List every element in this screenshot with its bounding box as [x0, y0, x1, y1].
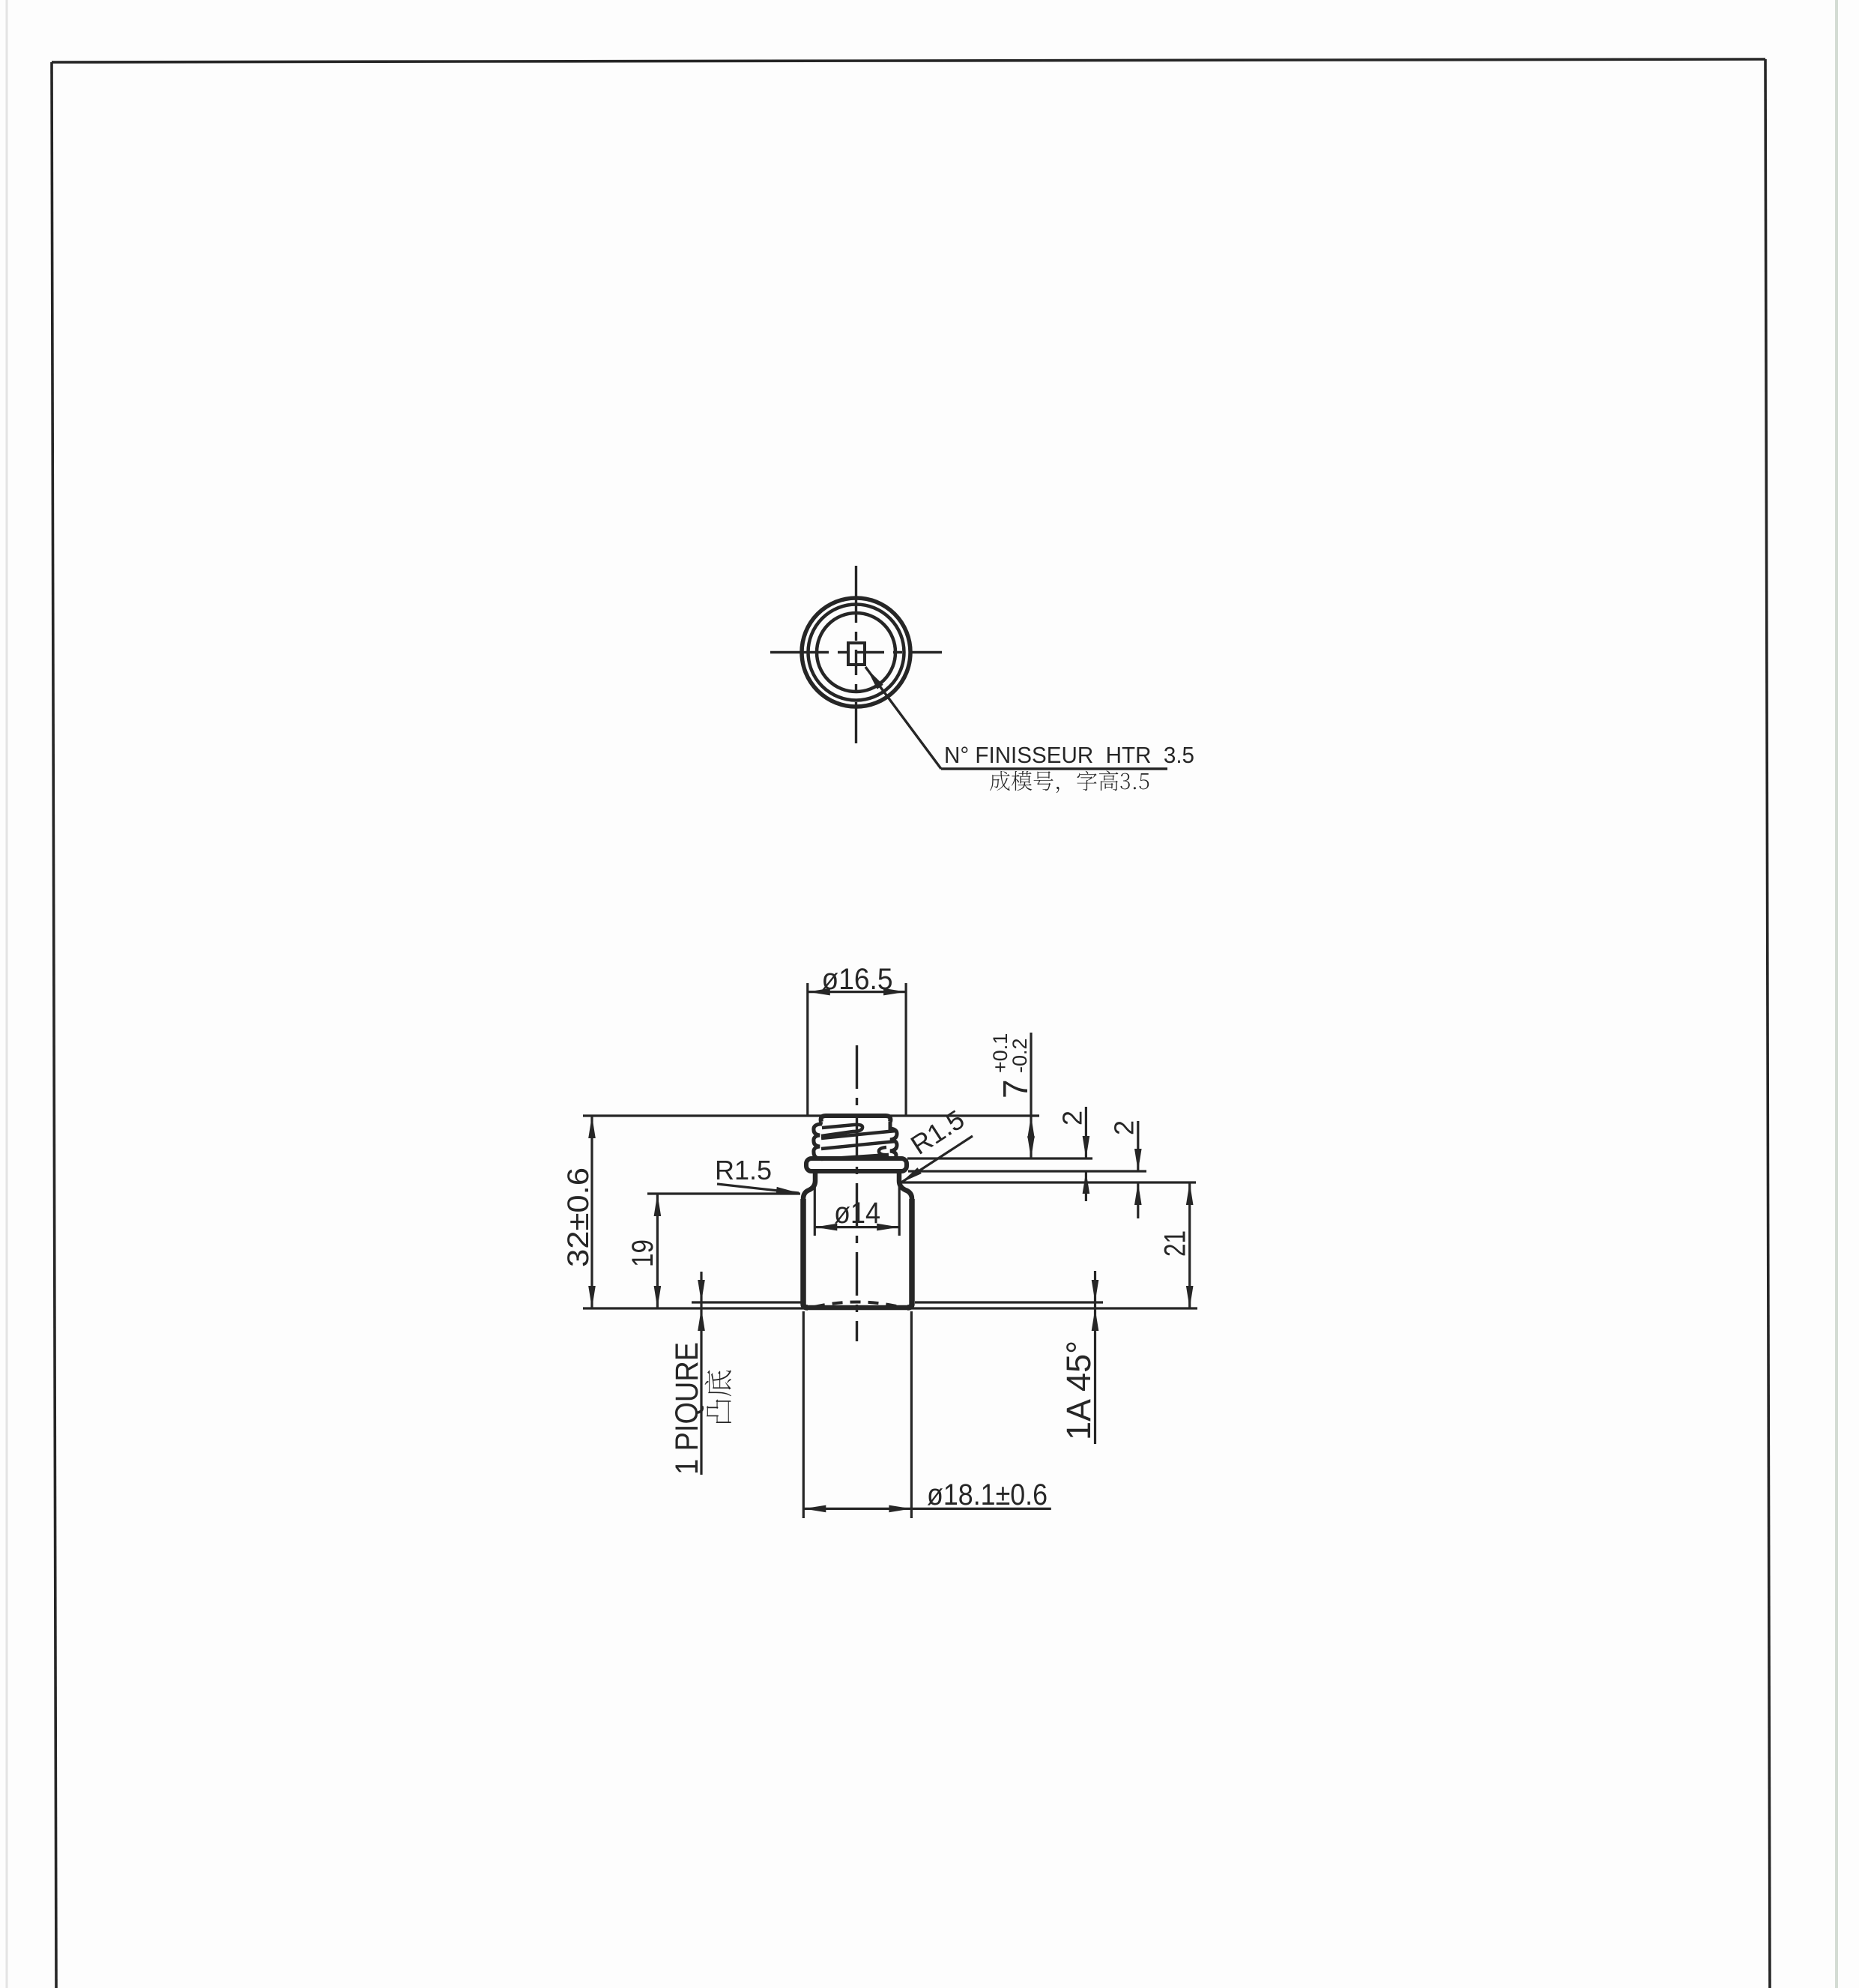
svg-text:32±0.6: 32±0.6: [562, 1167, 595, 1267]
svg-text:7: 7: [996, 1079, 1035, 1099]
svg-text:N° FINISSEUR HTR 3.5: N° FINISSEUR HTR 3.5: [944, 742, 1194, 768]
svg-text:2: 2: [1109, 1120, 1140, 1135]
svg-text:19: 19: [626, 1239, 659, 1267]
svg-text:ø16.5: ø16.5: [822, 963, 893, 996]
svg-text:-0.2: -0.2: [1009, 1038, 1031, 1073]
svg-text:1 PIQURE: 1 PIQURE: [669, 1342, 705, 1475]
svg-text:1A 45°: 1A 45°: [1060, 1341, 1098, 1440]
svg-text:R1.5: R1.5: [715, 1155, 772, 1185]
svg-text:ø18.1±0.6: ø18.1±0.6: [927, 1478, 1048, 1511]
svg-text:ø14: ø14: [834, 1197, 880, 1230]
svg-text:2: 2: [1057, 1111, 1088, 1126]
svg-text:21: 21: [1159, 1230, 1192, 1257]
